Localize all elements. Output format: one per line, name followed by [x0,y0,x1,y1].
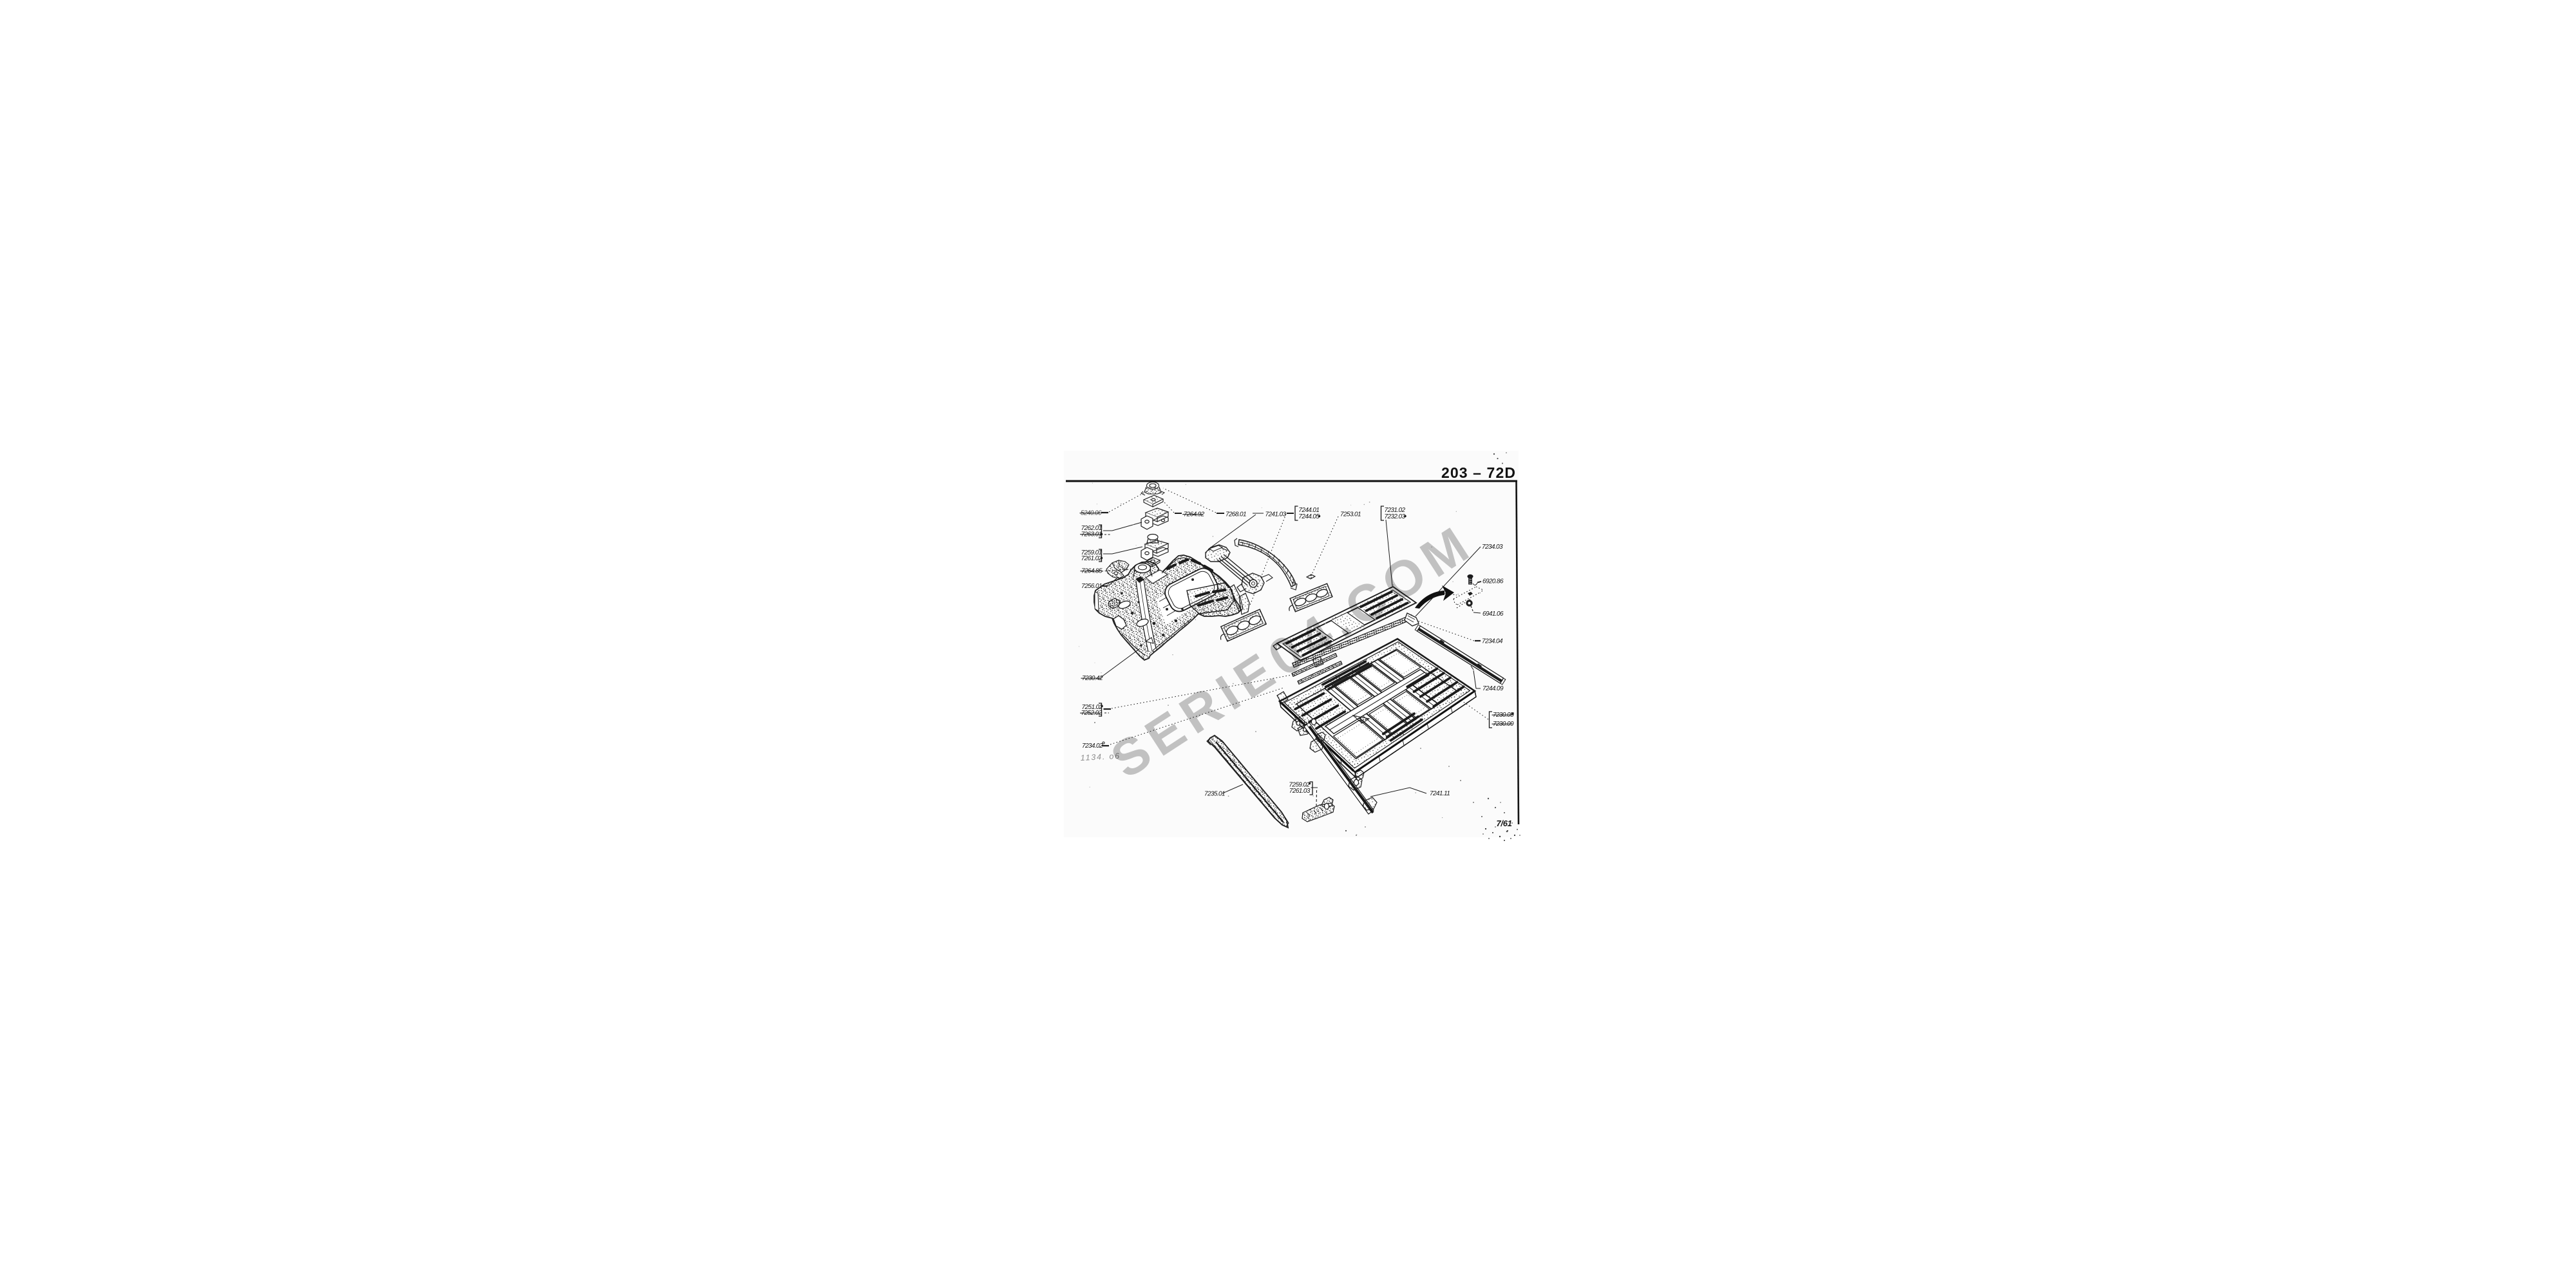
svg-text:203 – 72D: 203 – 72D [1441,464,1516,481]
svg-text:7241.11: 7241.11 [1430,790,1450,797]
svg-text:7253.01: 7253.01 [1340,511,1361,518]
svg-text:7232.03: 7232.03 [1385,513,1406,520]
svg-text:7244.09: 7244.09 [1482,685,1504,692]
svg-text:7256.01: 7256.01 [1081,583,1102,590]
svg-text:7261.03: 7261.03 [1289,788,1311,795]
svg-text:7244.05: 7244.05 [1298,513,1320,520]
svg-text:7234.02: 7234.02 [1082,743,1103,750]
svg-text:7234.04: 7234.04 [1482,638,1503,645]
svg-text:7268.01: 7268.01 [1226,511,1246,518]
svg-text:7234.03: 7234.03 [1482,544,1503,551]
svg-text:6920.86: 6920.86 [1482,578,1504,585]
svg-text:7/61: 7/61 [1497,819,1512,828]
svg-text:7235.01: 7235.01 [1204,791,1225,798]
svg-text:7241.03: 7241.03 [1265,511,1287,518]
svg-text:6941.06: 6941.06 [1482,611,1504,618]
